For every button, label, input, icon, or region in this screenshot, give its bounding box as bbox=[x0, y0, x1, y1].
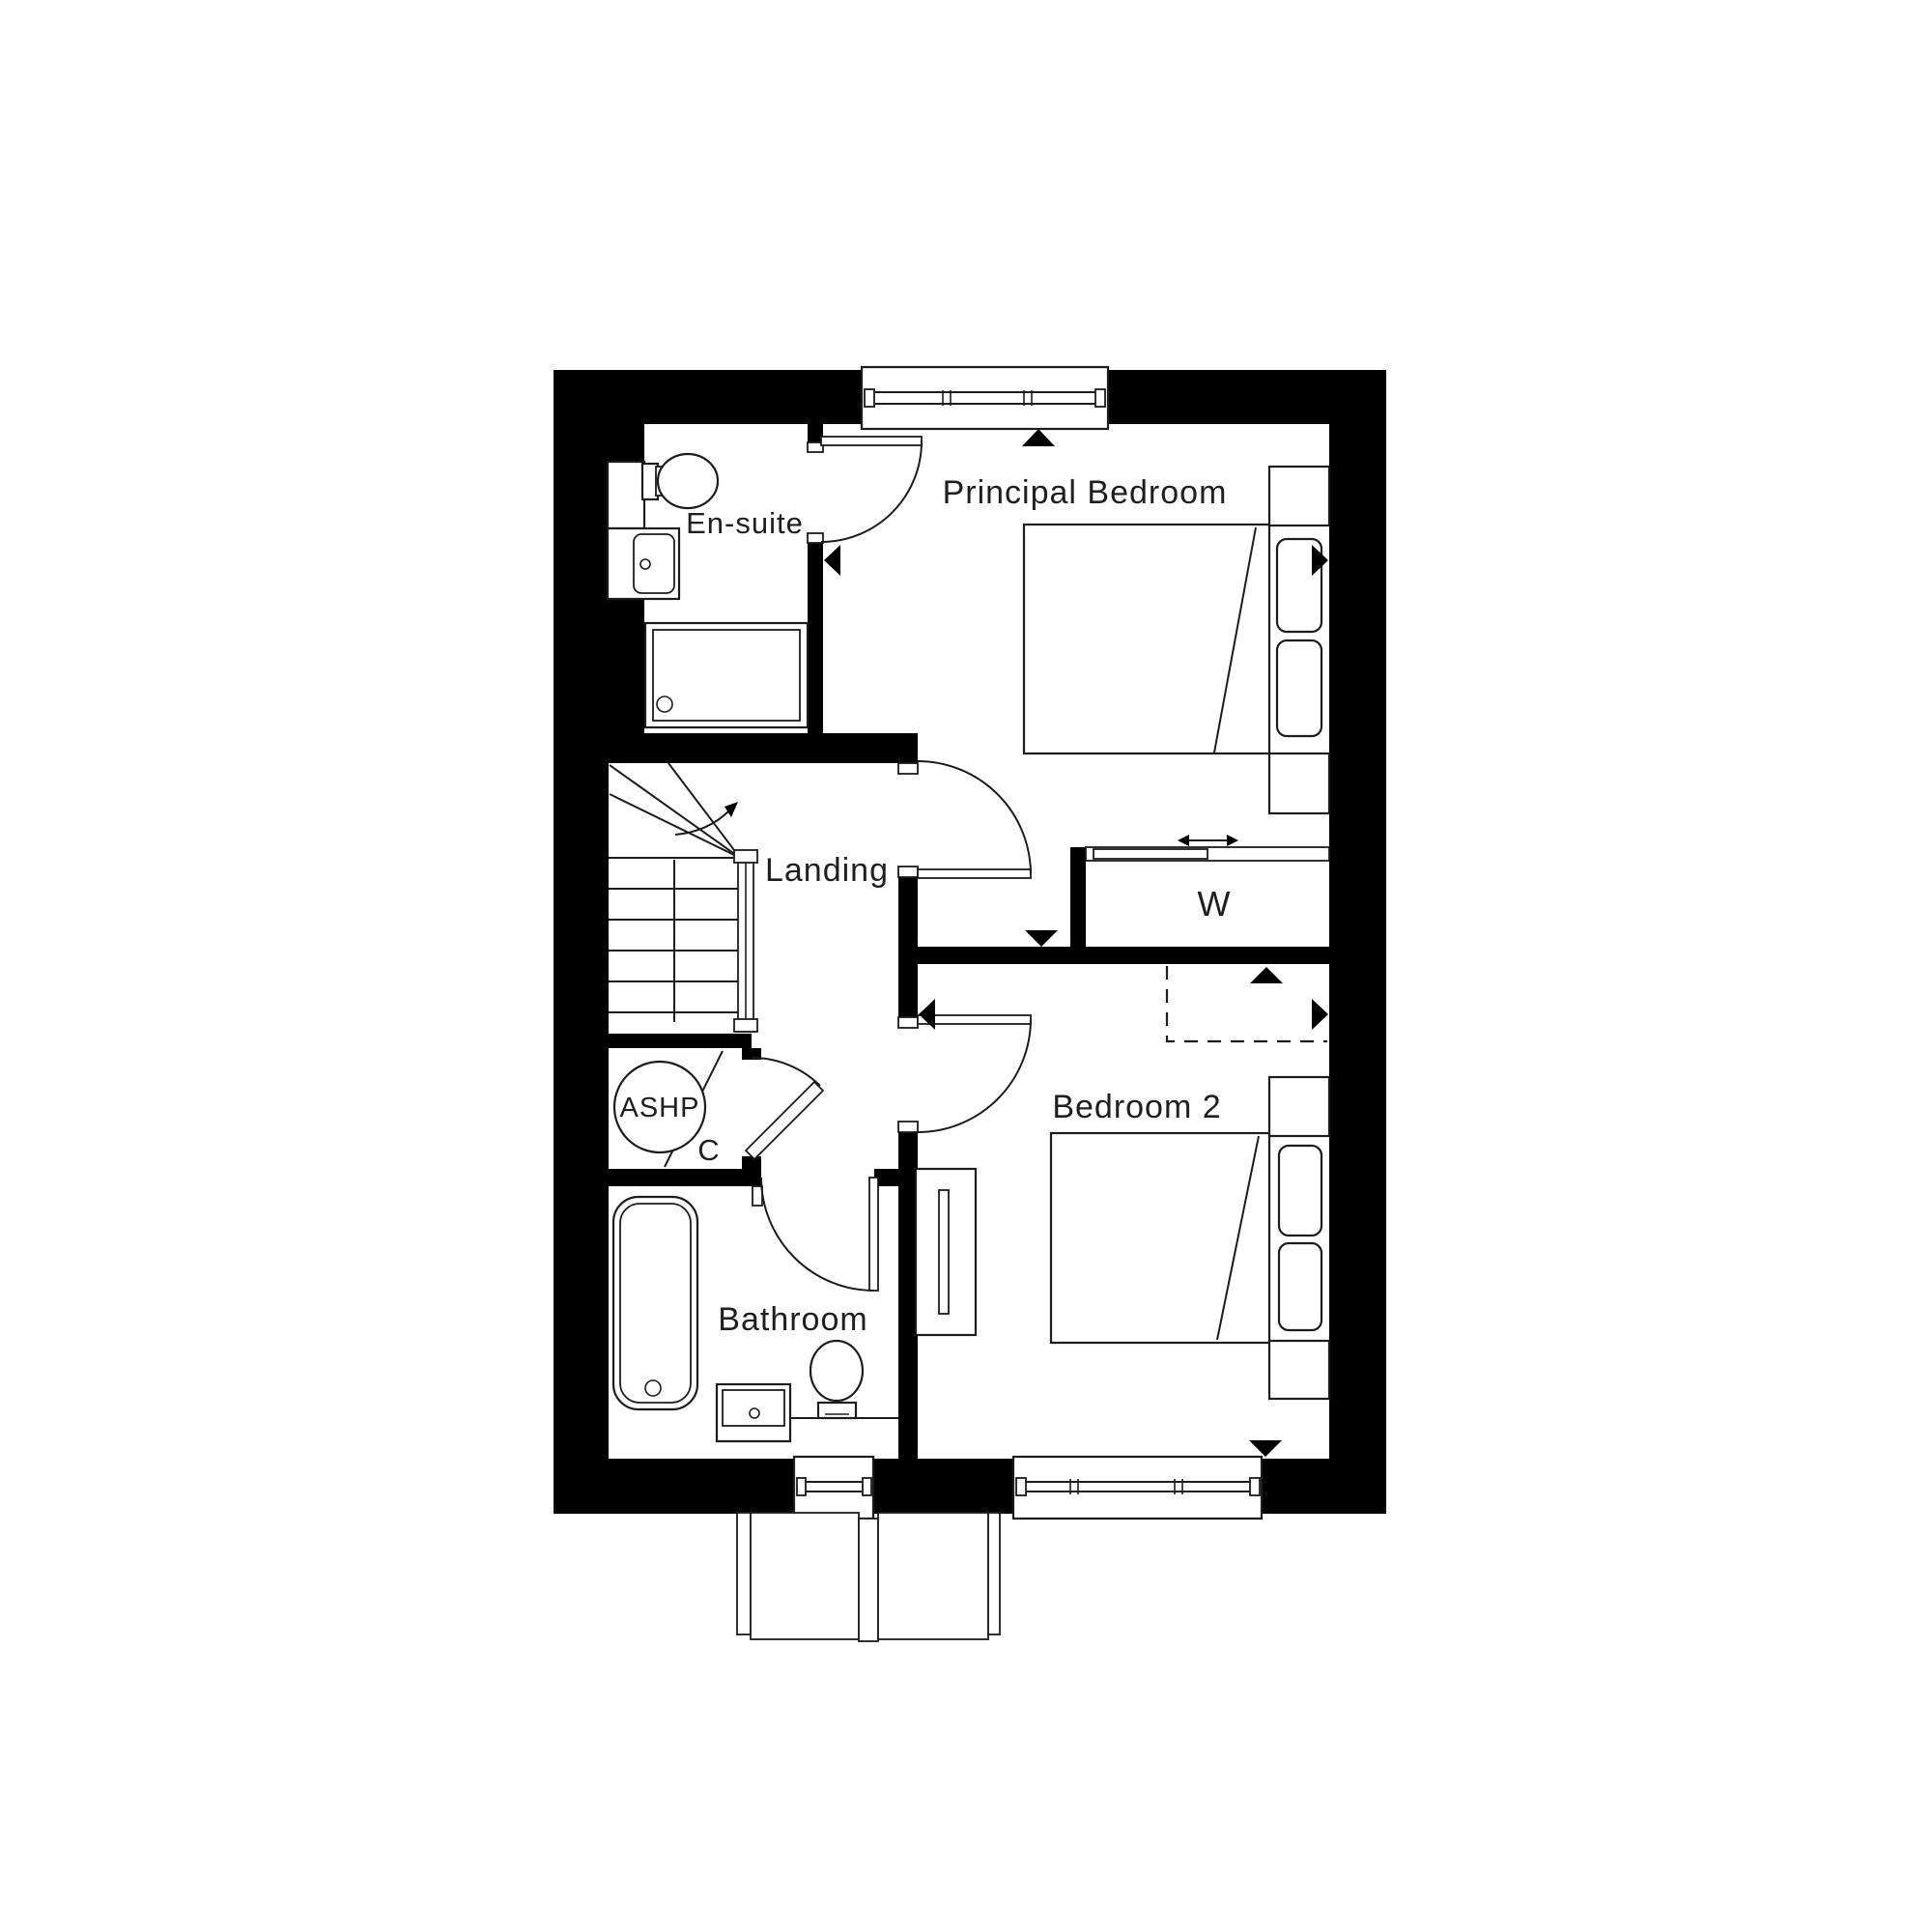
ensuite-basin bbox=[608, 528, 679, 599]
ensuite-south-wall bbox=[609, 733, 918, 763]
winder-treads bbox=[610, 763, 740, 858]
jamb-cap bbox=[753, 1186, 762, 1206]
arrow-up-marker bbox=[1022, 429, 1055, 446]
window-end-cap bbox=[1250, 1478, 1260, 1495]
arrow-left-marker bbox=[919, 999, 935, 1030]
ensuite-label: En-suite bbox=[686, 506, 804, 540]
top-window bbox=[862, 367, 1108, 429]
wardrobe-label: W bbox=[1198, 884, 1232, 923]
jamb-cap bbox=[898, 867, 918, 877]
cupboard-door bbox=[746, 1058, 823, 1159]
bedside-cabinet bbox=[1269, 467, 1329, 526]
bedside-cabinet bbox=[1269, 1341, 1329, 1399]
bottom-wall-left bbox=[554, 1459, 794, 1514]
bathroom-door bbox=[761, 1178, 878, 1291]
window-end-cap bbox=[1016, 1478, 1026, 1495]
wardrobe-sliding-panel bbox=[1094, 849, 1207, 859]
bathroom-label: Bathroom bbox=[718, 1301, 867, 1338]
window-end-cap bbox=[797, 1478, 806, 1495]
door-leaf bbox=[918, 869, 1031, 878]
arrow-down-marker bbox=[1025, 930, 1058, 947]
jamb-cap bbox=[808, 533, 823, 543]
bedroom2-door bbox=[918, 1015, 1031, 1132]
bathroom-toilet bbox=[790, 1341, 898, 1418]
arrow-down-marker bbox=[1249, 1440, 1282, 1457]
door-swing-arc bbox=[918, 1019, 1031, 1132]
door-leaf bbox=[746, 1082, 823, 1159]
pillow bbox=[1279, 1243, 1321, 1330]
bedroom2-window bbox=[1013, 1457, 1262, 1519]
window-end-cap bbox=[863, 1478, 871, 1495]
door-swing-arc bbox=[761, 1178, 874, 1291]
sliding-direction-arrow bbox=[1178, 835, 1238, 846]
sliding-wardrobe bbox=[1086, 835, 1329, 861]
door-swing-arc bbox=[918, 761, 1031, 874]
bathroom-window bbox=[794, 1457, 873, 1519]
bottom-wall-middle bbox=[873, 1459, 1013, 1514]
floorplan-drawing: Principal Bedroom En-suite Landing W Bed… bbox=[0, 0, 1932, 1932]
pillow bbox=[1279, 1146, 1321, 1236]
landing-label: Landing bbox=[765, 852, 889, 889]
dashed-bulkhead-zone bbox=[1167, 966, 1327, 1041]
wardrobe-west-wall bbox=[1070, 847, 1086, 964]
door-leaf bbox=[869, 1178, 878, 1291]
ensuite-door bbox=[821, 437, 922, 542]
newel-post bbox=[734, 850, 757, 863]
bedroom2-furniture bbox=[916, 966, 1329, 1399]
door-swing-arc bbox=[821, 441, 922, 542]
window-end-cap bbox=[865, 389, 874, 407]
ensuite-east-wall bbox=[808, 543, 823, 736]
principal-bedroom-label: Principal Bedroom bbox=[943, 474, 1228, 511]
cupboard-door-jamb-bottom bbox=[742, 1156, 761, 1169]
porch-outline-below bbox=[737, 1513, 1000, 1641]
door-leaf bbox=[821, 437, 922, 445]
shower-tray bbox=[645, 623, 808, 727]
arrow-right-marker bbox=[1312, 999, 1328, 1030]
bottom-wall-right bbox=[1262, 1459, 1386, 1514]
jamb-cap bbox=[898, 763, 918, 774]
bedside-cabinet bbox=[1269, 1077, 1329, 1136]
wardrobe-south-wall bbox=[898, 947, 1329, 964]
bedroom2-bed bbox=[1051, 1133, 1269, 1343]
newel-post bbox=[734, 1019, 757, 1032]
staircase bbox=[609, 763, 757, 1032]
principal-bedroom-door bbox=[918, 761, 1031, 878]
arrow-up-marker bbox=[1250, 967, 1283, 983]
bath bbox=[613, 1197, 697, 1409]
door-swing-arc bbox=[752, 1058, 820, 1086]
principal-bed bbox=[1024, 525, 1269, 753]
principal-bedroom-furniture bbox=[1024, 467, 1329, 813]
jamb-cap bbox=[898, 1122, 918, 1132]
cupboard-label: C bbox=[697, 1133, 720, 1167]
window-end-cap bbox=[1095, 389, 1105, 407]
floorplan-page: Principal Bedroom En-suite Landing W Bed… bbox=[0, 0, 1932, 1932]
jamb-cap bbox=[898, 1017, 918, 1028]
bathroom-north-wall bbox=[609, 1169, 761, 1186]
pillow bbox=[1277, 640, 1321, 736]
stair-handrail bbox=[734, 850, 757, 1032]
arrow-left-marker bbox=[824, 545, 840, 576]
drawer-handle-slot bbox=[939, 1190, 949, 1314]
ashp-label: ASHP bbox=[620, 1093, 700, 1123]
bedside-cabinet bbox=[1269, 753, 1329, 813]
right-wall bbox=[1329, 370, 1386, 1514]
stairs-bottom-wall bbox=[609, 1034, 752, 1048]
bedroom2-label: Bedroom 2 bbox=[1052, 1089, 1221, 1125]
bathroom-basin bbox=[717, 1384, 790, 1441]
